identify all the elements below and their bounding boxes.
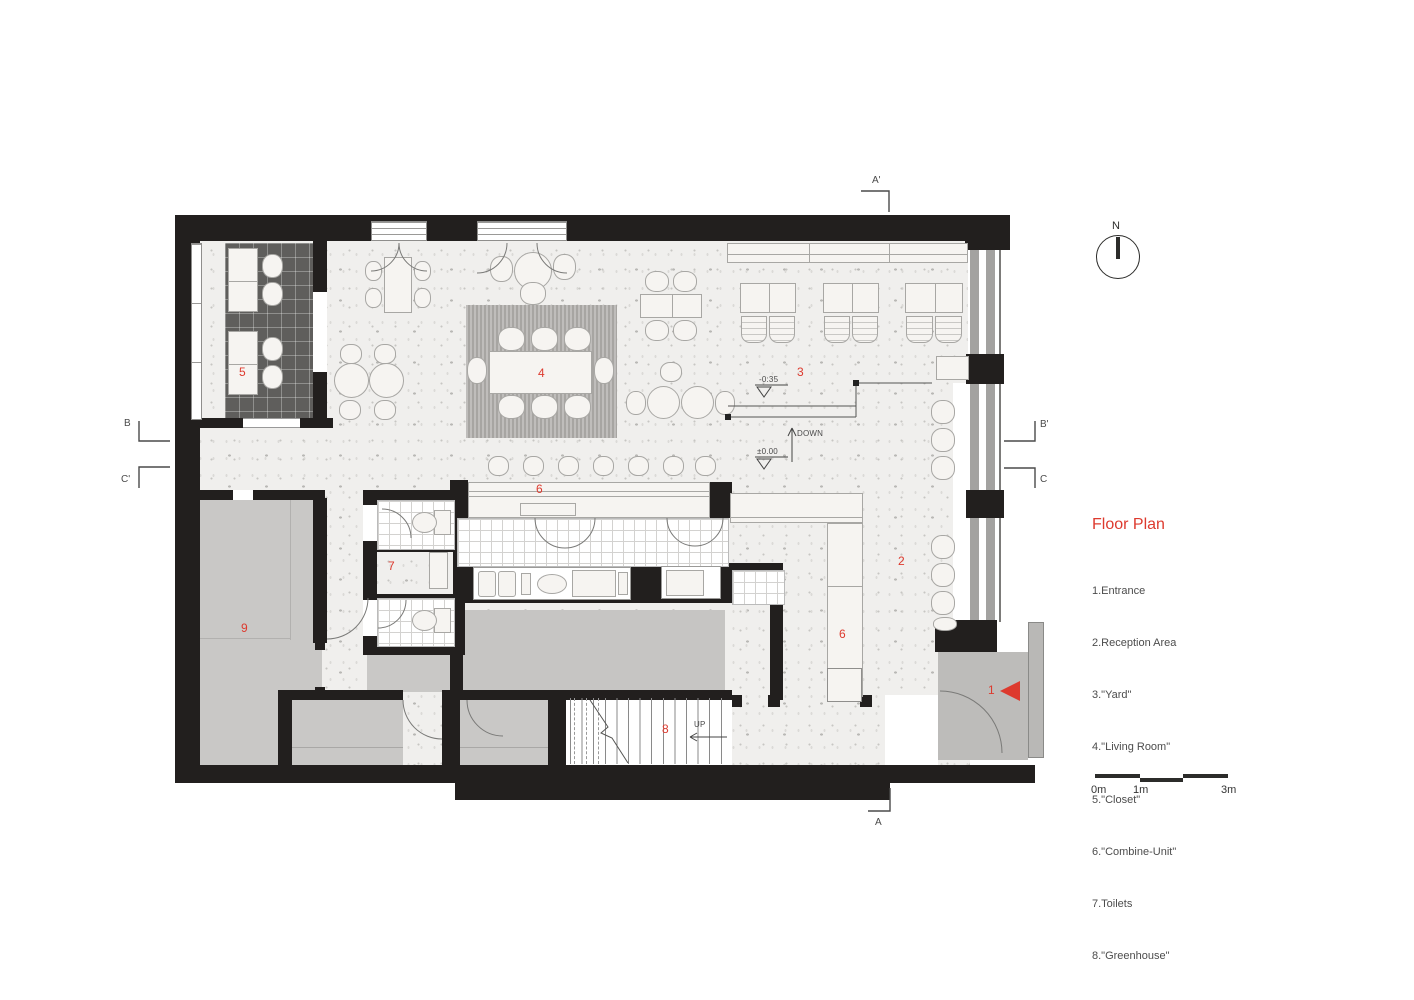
section-label-a-prime: A' bbox=[872, 176, 881, 186]
scale-bar-segment-2 bbox=[1140, 778, 1183, 782]
yard-booth-chair bbox=[769, 316, 795, 343]
combine-unit-counter-detail bbox=[520, 503, 576, 516]
reception-chair bbox=[931, 428, 955, 452]
wall-bottomrooms-horiz-1 bbox=[278, 690, 403, 700]
legend-item: 8."Greenhouse" bbox=[1092, 948, 1179, 965]
hall-chair bbox=[660, 362, 682, 382]
hall-chair bbox=[673, 271, 697, 292]
section-line-c-prime bbox=[139, 467, 170, 488]
hall-round-table bbox=[681, 386, 714, 419]
section-line-a-prime bbox=[861, 191, 889, 212]
room-label-4: 4 bbox=[538, 367, 545, 379]
section-line-b-prime bbox=[1004, 421, 1035, 441]
living-room-chair bbox=[498, 327, 525, 351]
hall-chair bbox=[340, 344, 362, 364]
living-room-chair bbox=[564, 395, 591, 419]
hall-table-b bbox=[640, 294, 702, 318]
kitchen-storage-counter-line bbox=[290, 500, 291, 640]
section-label-b: B bbox=[124, 419, 131, 429]
stairs-dashed-line bbox=[598, 698, 599, 764]
yard-booth-chair bbox=[824, 316, 850, 343]
hall-chair bbox=[715, 391, 735, 415]
storage-room-floor bbox=[367, 655, 452, 692]
hall-chair bbox=[374, 344, 396, 364]
toilet-door-gap-lower bbox=[363, 600, 377, 636]
hall-chair bbox=[626, 391, 646, 415]
bar-stool bbox=[628, 456, 649, 476]
down-label: DOWN bbox=[797, 429, 823, 438]
section-label-c-prime: C' bbox=[121, 475, 130, 485]
scale-bar-segment-1 bbox=[1095, 774, 1140, 778]
wall-kitchen-right bbox=[313, 498, 327, 643]
living-room-chair bbox=[564, 327, 591, 351]
section-label-a: A bbox=[875, 818, 882, 828]
kitchen-appliance bbox=[572, 570, 616, 597]
legend-item: 1.Entrance bbox=[1092, 583, 1179, 600]
yard-booth-table bbox=[740, 283, 796, 313]
entrance-arrow bbox=[1000, 681, 1020, 701]
glazing-mullion-1 bbox=[966, 354, 1004, 384]
combine-unit-counter bbox=[468, 482, 710, 518]
yard-booth-table bbox=[905, 283, 963, 313]
hall-chair bbox=[490, 256, 513, 282]
hall-chair bbox=[520, 282, 546, 305]
living-room-chair bbox=[467, 357, 487, 384]
legend-item: 6."Combine-Unit" bbox=[1092, 844, 1179, 861]
hall-round-table bbox=[647, 386, 680, 419]
toilet-lower-bowl bbox=[412, 610, 437, 631]
room-label-3: 3 bbox=[797, 366, 804, 378]
wall-combine-right-stub bbox=[710, 482, 732, 518]
reception-chair bbox=[931, 535, 955, 559]
hall-chair bbox=[365, 288, 382, 308]
closet-table-2 bbox=[228, 331, 258, 395]
legend-item: 4."Living Room" bbox=[1092, 739, 1179, 756]
kitchen-sink-2 bbox=[498, 571, 516, 597]
scale-label-3m: 3m bbox=[1221, 784, 1236, 796]
wall-top bbox=[175, 215, 985, 241]
room-label-9: 9 bbox=[241, 622, 248, 634]
room-label-2: 2 bbox=[898, 555, 905, 567]
hall-chair bbox=[339, 400, 361, 420]
room-label-6: 6 bbox=[536, 483, 543, 495]
room-label-1: 1 bbox=[988, 684, 995, 696]
stairs-dashed-line bbox=[586, 698, 587, 764]
yard-bench bbox=[727, 243, 968, 263]
hall-round-table bbox=[334, 363, 369, 398]
living-room-chair bbox=[594, 357, 614, 384]
reception-chair bbox=[931, 400, 955, 424]
scale-label-0m: 0m bbox=[1091, 784, 1106, 796]
wall-stub-greenhouse-1 bbox=[732, 695, 742, 707]
yard-booth-chair bbox=[852, 316, 878, 343]
reception-chair bbox=[931, 563, 955, 587]
entrance-vestibule-floor bbox=[938, 652, 1028, 760]
legend-item: 2.Reception Area bbox=[1092, 635, 1179, 652]
toilet-upper-bowl bbox=[412, 512, 437, 533]
section-line-b bbox=[139, 421, 170, 441]
hall-chair bbox=[645, 271, 669, 292]
kitchen-tile-box bbox=[732, 570, 785, 605]
yard-booth-chair bbox=[906, 316, 933, 343]
bottom-room-2-floor bbox=[460, 700, 550, 765]
north-arrow-needle bbox=[1116, 237, 1120, 259]
reception-chair bbox=[933, 617, 957, 631]
yard-booth-table bbox=[823, 283, 879, 313]
hall-chair bbox=[414, 261, 431, 281]
toilet-door-gap-upper bbox=[363, 505, 377, 541]
slab-gray bbox=[463, 610, 725, 690]
hall-chair bbox=[374, 400, 396, 420]
reception-chair bbox=[931, 591, 955, 615]
bar-stool bbox=[523, 456, 544, 476]
bottom-room-1-floor bbox=[292, 700, 403, 765]
hall-round-table bbox=[369, 363, 404, 398]
white-patch-right bbox=[885, 695, 938, 765]
wall-stairs-left bbox=[548, 692, 566, 765]
stairs-dashed-line bbox=[574, 698, 575, 764]
hall-table-a bbox=[384, 257, 412, 313]
bar-stool bbox=[488, 456, 509, 476]
hall-chair bbox=[365, 261, 382, 281]
wall-corner-topright bbox=[965, 215, 1010, 250]
level-minus-label: -0:35 bbox=[759, 375, 778, 384]
bar-stool bbox=[558, 456, 579, 476]
top-door-opening-1 bbox=[371, 221, 427, 241]
bottom-room-2-line bbox=[460, 747, 548, 748]
kitchen-sink-1 bbox=[478, 571, 496, 597]
kitchen-item-side bbox=[618, 572, 628, 595]
legend-title: Floor Plan bbox=[1092, 516, 1165, 534]
kitchen-basin-oval bbox=[537, 574, 567, 594]
wall-bottom-thick bbox=[455, 783, 890, 800]
kitchen-storage-line bbox=[193, 638, 290, 639]
closet-chair-3 bbox=[262, 337, 283, 361]
scale-label-1m: 1m bbox=[1133, 784, 1148, 796]
closet-side-window bbox=[191, 243, 202, 420]
living-room-chair bbox=[498, 395, 525, 419]
room-label-6b: 6 bbox=[839, 628, 846, 640]
scale-bar-segment-3 bbox=[1183, 774, 1228, 778]
glazing-pane-inner bbox=[986, 250, 995, 622]
glazing-frame-line bbox=[999, 250, 1001, 622]
room-label-8: 8 bbox=[662, 723, 669, 735]
closet-table-1 bbox=[228, 248, 258, 312]
closet-wall-recess bbox=[313, 292, 327, 372]
legend-item: 7.Toilets bbox=[1092, 896, 1179, 913]
room-label-5: 5 bbox=[239, 366, 246, 378]
bar-stool bbox=[663, 456, 684, 476]
section-line-c bbox=[1004, 468, 1035, 488]
wall-bottomrooms-vert-2 bbox=[442, 690, 460, 765]
floor-plan-drawing: 1 2 3 4 5 6 6 7 8 9 DOWN UP -0:35 ±0.00 … bbox=[0, 0, 1414, 1000]
section-label-b-prime: B' bbox=[1040, 420, 1049, 430]
kitchen-item-small bbox=[521, 573, 531, 595]
top-door-opening-2 bbox=[477, 221, 567, 241]
hall-chair bbox=[553, 254, 576, 280]
glazing-pane-outer bbox=[970, 250, 979, 622]
yard-booth-chair bbox=[741, 316, 767, 343]
closet-bottom-opening bbox=[243, 418, 300, 428]
legend-item: 3."Yard" bbox=[1092, 687, 1179, 704]
closet-chair-2 bbox=[262, 282, 283, 306]
wall-stub-corridor-1 bbox=[315, 640, 325, 650]
kitchen-top-opening bbox=[233, 490, 253, 500]
bottom-room-1-line bbox=[292, 747, 403, 748]
living-room-chair bbox=[531, 327, 558, 351]
reception-counter-horizontal bbox=[730, 493, 863, 523]
room-label-7: 7 bbox=[388, 560, 395, 572]
toilet-corridor-sink bbox=[429, 552, 448, 589]
stairs-treads bbox=[570, 698, 732, 764]
wall-reception-vert bbox=[770, 600, 783, 700]
hall-chair bbox=[414, 288, 431, 308]
yard-cabinet bbox=[936, 356, 969, 380]
up-label: UP bbox=[694, 720, 706, 729]
reception-chair bbox=[931, 456, 955, 480]
kitchen-appliance-2 bbox=[666, 570, 704, 596]
living-room-chair bbox=[531, 395, 558, 419]
section-label-c: C bbox=[1040, 475, 1047, 485]
greenhouse-planter bbox=[827, 668, 862, 702]
bar-stool bbox=[695, 456, 716, 476]
wall-bottomrooms-vert-1 bbox=[278, 690, 292, 765]
closet-chair-4 bbox=[262, 365, 283, 389]
glazing-mullion-2 bbox=[966, 490, 1004, 518]
level-zero-label: ±0.00 bbox=[757, 447, 778, 456]
wall-bottom bbox=[175, 765, 1035, 783]
yard-booth-chair bbox=[935, 316, 962, 343]
bar-stool bbox=[593, 456, 614, 476]
hall-chair bbox=[645, 320, 669, 341]
closet-chair-1 bbox=[262, 254, 283, 278]
hall-chair bbox=[673, 320, 697, 341]
entrance-door-leaf bbox=[1028, 622, 1044, 758]
north-label: N bbox=[1112, 221, 1120, 231]
combine-unit-tile-counter bbox=[457, 518, 729, 567]
